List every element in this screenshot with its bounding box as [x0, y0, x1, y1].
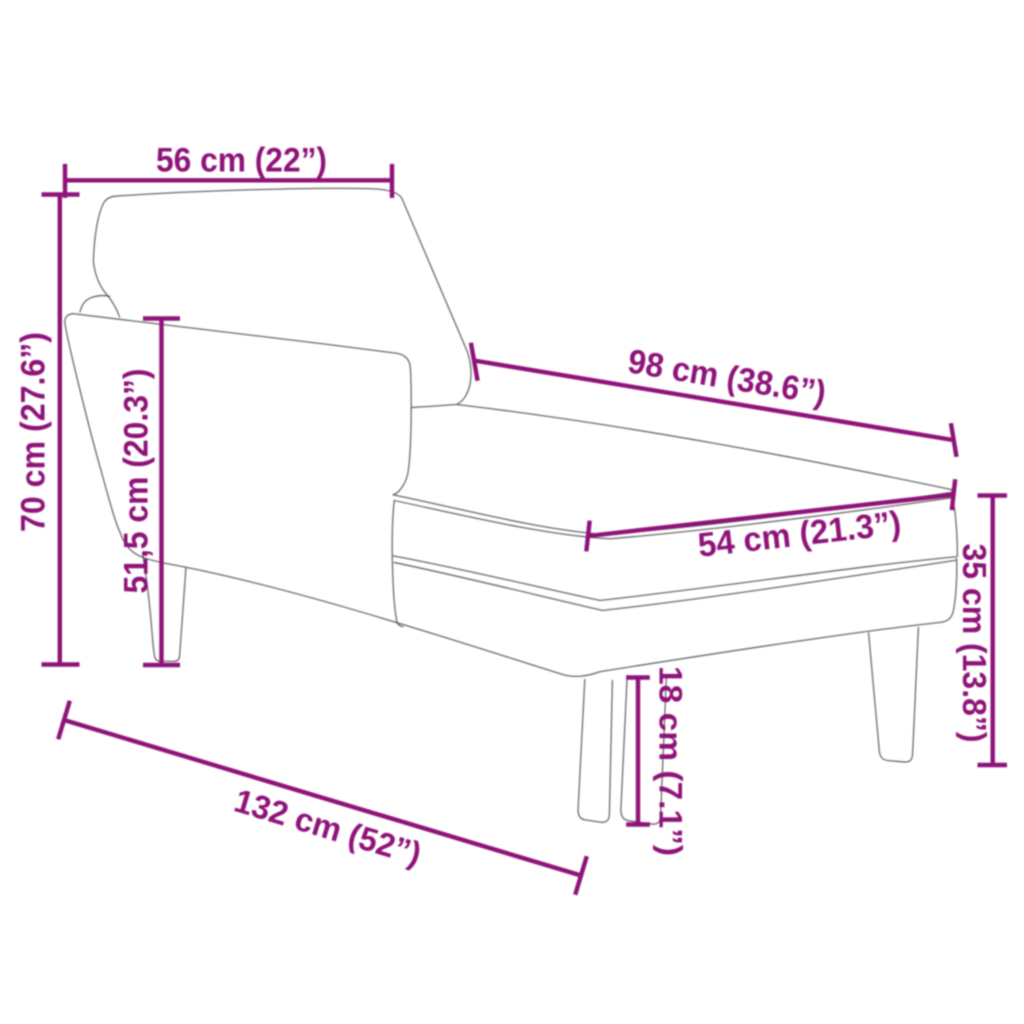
svg-text:51,5 cm (20.3”): 51,5 cm (20.3”) [118, 369, 156, 594]
svg-text:56 cm (22”): 56 cm (22”) [156, 142, 327, 180]
svg-text:132 cm (52”): 132 cm (52”) [230, 782, 425, 873]
svg-text:35 cm (13.8”): 35 cm (13.8”) [955, 544, 992, 743]
svg-text:18 cm (7.1”): 18 cm (7.1”) [653, 666, 689, 856]
svg-text:70 cm (27.6”): 70 cm (27.6”) [14, 332, 52, 532]
